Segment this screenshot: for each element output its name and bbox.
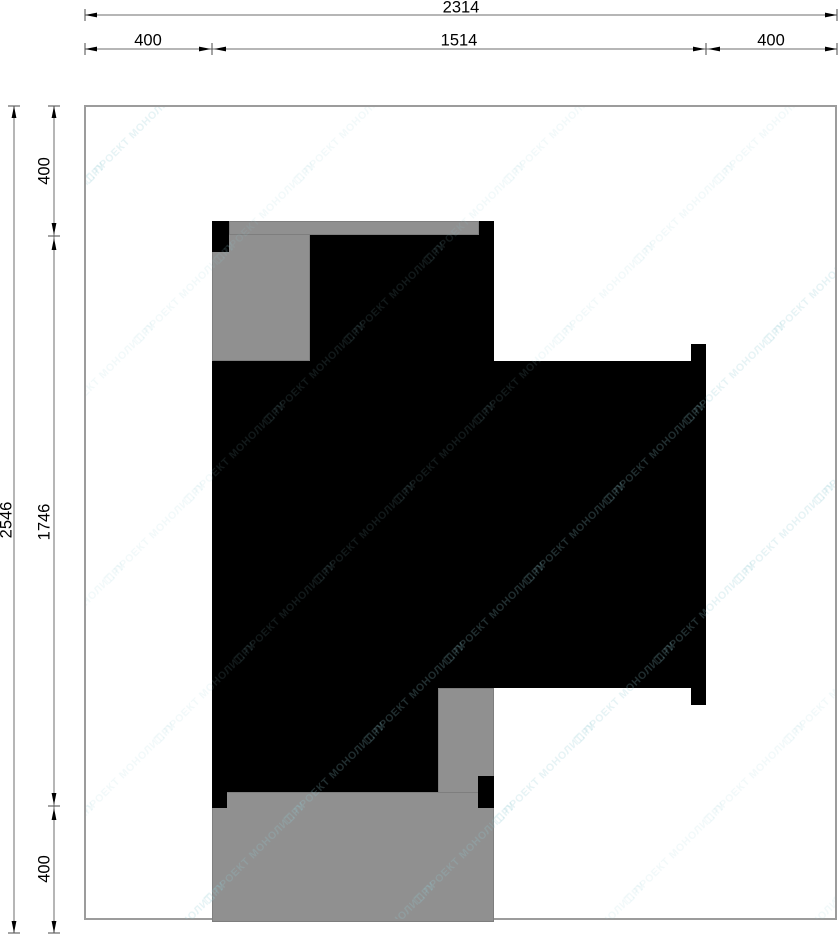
footprint-pier-wing-bottom [691,688,706,705]
footprint-main-body [212,361,706,688]
dim-left-total: 2546 [0,502,17,539]
footprint-pier-top-mid [479,221,494,235]
footprint-upper-body [310,235,494,361]
dim-left-seg-bottom: 400 [36,855,55,883]
footprint-pier-bottom-left [212,792,227,808]
terrace-top-band [229,221,479,235]
dim-top-total: 2314 [443,0,480,18]
footprint-lower-body [212,688,438,792]
dim-left-seg-mid: 1746 [36,504,55,541]
terrace-bottom-block [212,792,494,922]
dim-top-seg-mid: 1514 [441,32,478,51]
footprint-pier-wing-top [691,344,706,361]
dim-top-seg-right: 400 [757,32,785,51]
dim-top-seg-left: 400 [134,32,162,51]
dim-left-seg-top: 400 [36,157,55,185]
footprint-pier-top-left [212,221,229,252]
site-plan-canvas: ❑ ПРОЕКТ МОНОЛИТ.РУ❑ ПРОЕКТ МОНОЛИТ.РУ❑ … [0,0,839,940]
footprint-pier-bottom-right [478,776,494,808]
